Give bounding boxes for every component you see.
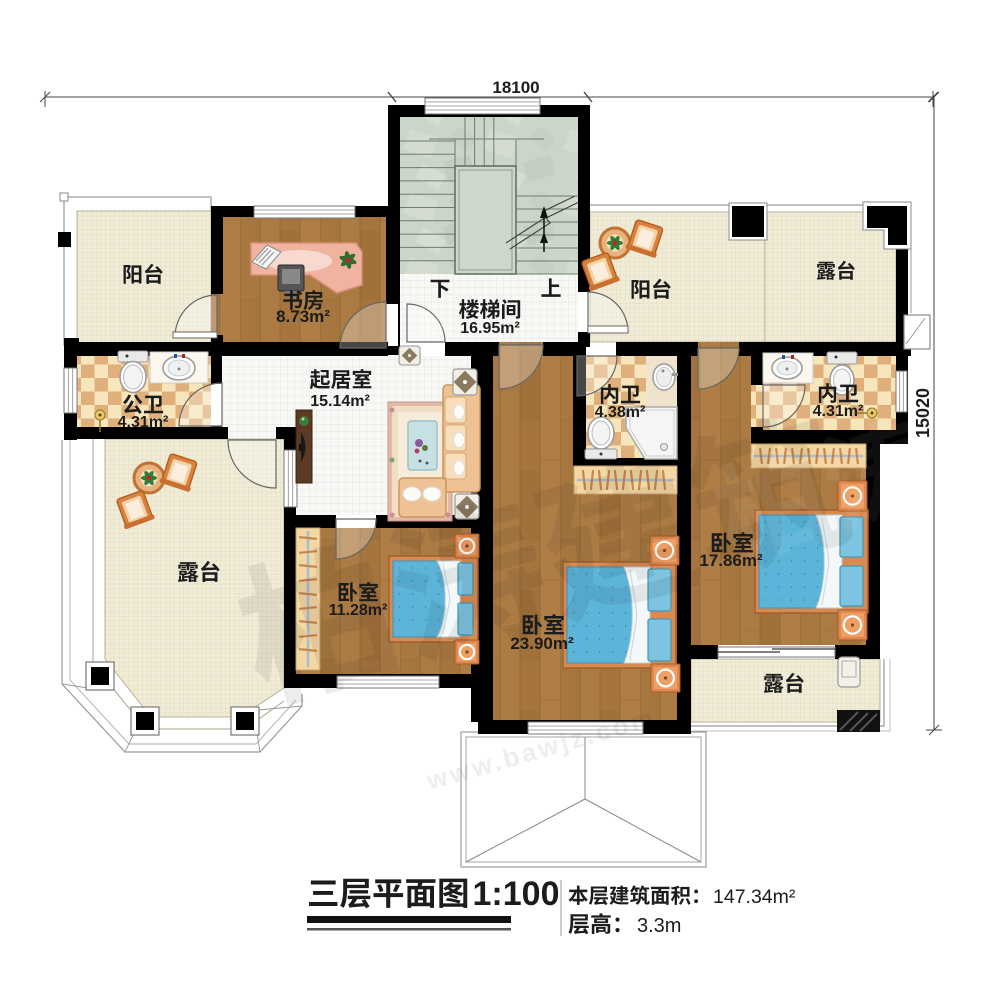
- svg-text:11.28m²: 11.28m²: [329, 602, 388, 619]
- svg-text:8.73m²: 8.73m²: [276, 307, 330, 326]
- svg-text:15.14m²: 15.14m²: [310, 393, 370, 410]
- svg-text:17.86m²: 17.86m²: [699, 551, 763, 570]
- svg-text:4.31m²: 4.31m²: [813, 403, 864, 420]
- svg-text:4.31m²: 4.31m²: [118, 414, 169, 431]
- svg-text:3.3m: 3.3m: [637, 915, 681, 937]
- svg-text:1:100: 1:100: [473, 875, 560, 913]
- svg-text:23.90m²: 23.90m²: [510, 634, 574, 653]
- svg-text:4.38m²: 4.38m²: [595, 404, 646, 421]
- svg-text:147.34m²: 147.34m²: [713, 886, 796, 908]
- svg-text:18100: 18100: [492, 78, 539, 97]
- svg-text:16.95m²: 16.95m²: [460, 320, 520, 337]
